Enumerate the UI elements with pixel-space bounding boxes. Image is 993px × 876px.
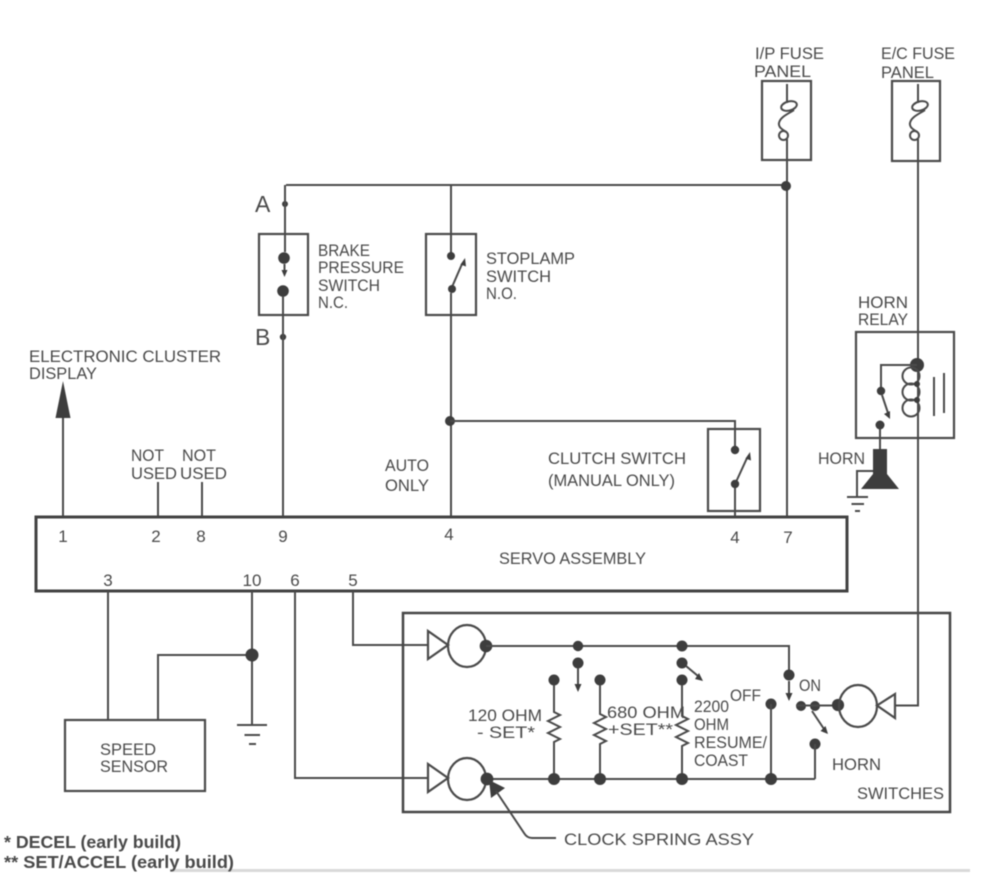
svg-text:B: B [255,324,270,350]
svg-text:DISPLAY: DISPLAY [29,364,97,383]
svg-text:2: 2 [151,527,160,546]
svg-text:NOT: NOT [131,446,164,465]
svg-text:OFF: OFF [730,686,761,705]
svg-text:USED: USED [180,464,227,483]
svg-text:3: 3 [103,571,112,590]
svg-text:5: 5 [348,571,357,590]
svg-text:+SET**: +SET** [608,720,673,739]
svg-text:SENSOR: SENSOR [100,757,168,776]
svg-text:OHM: OHM [694,715,729,734]
svg-text:** SET/ACCEL (early build): ** SET/ACCEL (early build) [4,852,234,872]
svg-text:4: 4 [730,528,739,547]
svg-text:10: 10 [243,571,262,590]
svg-text:(MANUAL ONLY): (MANUAL ONLY) [548,471,675,490]
svg-text:* DECEL (early build): * DECEL (early build) [4,832,181,852]
svg-text:1: 1 [58,527,67,546]
svg-text:CLUTCH SWITCH: CLUTCH SWITCH [548,449,686,468]
svg-text:CLOCK SPRING ASSY: CLOCK SPRING ASSY [564,830,754,849]
svg-text:8: 8 [196,527,205,546]
svg-text:4: 4 [444,525,453,544]
svg-text:PRESSURE: PRESSURE [318,258,404,277]
svg-text:NOT: NOT [182,446,216,465]
svg-text:ON: ON [799,676,821,695]
svg-text:PANEL: PANEL [881,63,934,82]
svg-text:A: A [255,191,271,217]
svg-text:HORN: HORN [832,755,881,774]
svg-text:7: 7 [783,528,792,547]
svg-text:SWITCHES: SWITCHES [857,784,944,803]
svg-text:USED: USED [131,464,177,483]
svg-text:COAST: COAST [694,751,748,770]
svg-text:9: 9 [278,527,287,546]
svg-text:I/P FUSE: I/P FUSE [755,44,824,63]
svg-text:AUTO: AUTO [385,456,429,475]
svg-text:- SET*: - SET* [477,723,535,742]
svg-text:N.C.: N.C. [318,293,348,312]
svg-text:2200: 2200 [694,697,729,716]
svg-text:STOPLAMP: STOPLAMP [486,249,575,268]
svg-text:N.O.: N.O. [486,284,517,303]
svg-text:HORN: HORN [818,449,865,468]
svg-text:PANEL: PANEL [754,62,811,81]
svg-text:ONLY: ONLY [385,476,429,495]
svg-text:SERVO ASSEMBLY: SERVO ASSEMBLY [499,549,646,568]
svg-text:6: 6 [290,571,299,590]
svg-text:RELAY: RELAY [858,310,908,329]
svg-text:RESUME/: RESUME/ [694,733,767,752]
svg-text:E/C FUSE: E/C FUSE [881,44,955,63]
